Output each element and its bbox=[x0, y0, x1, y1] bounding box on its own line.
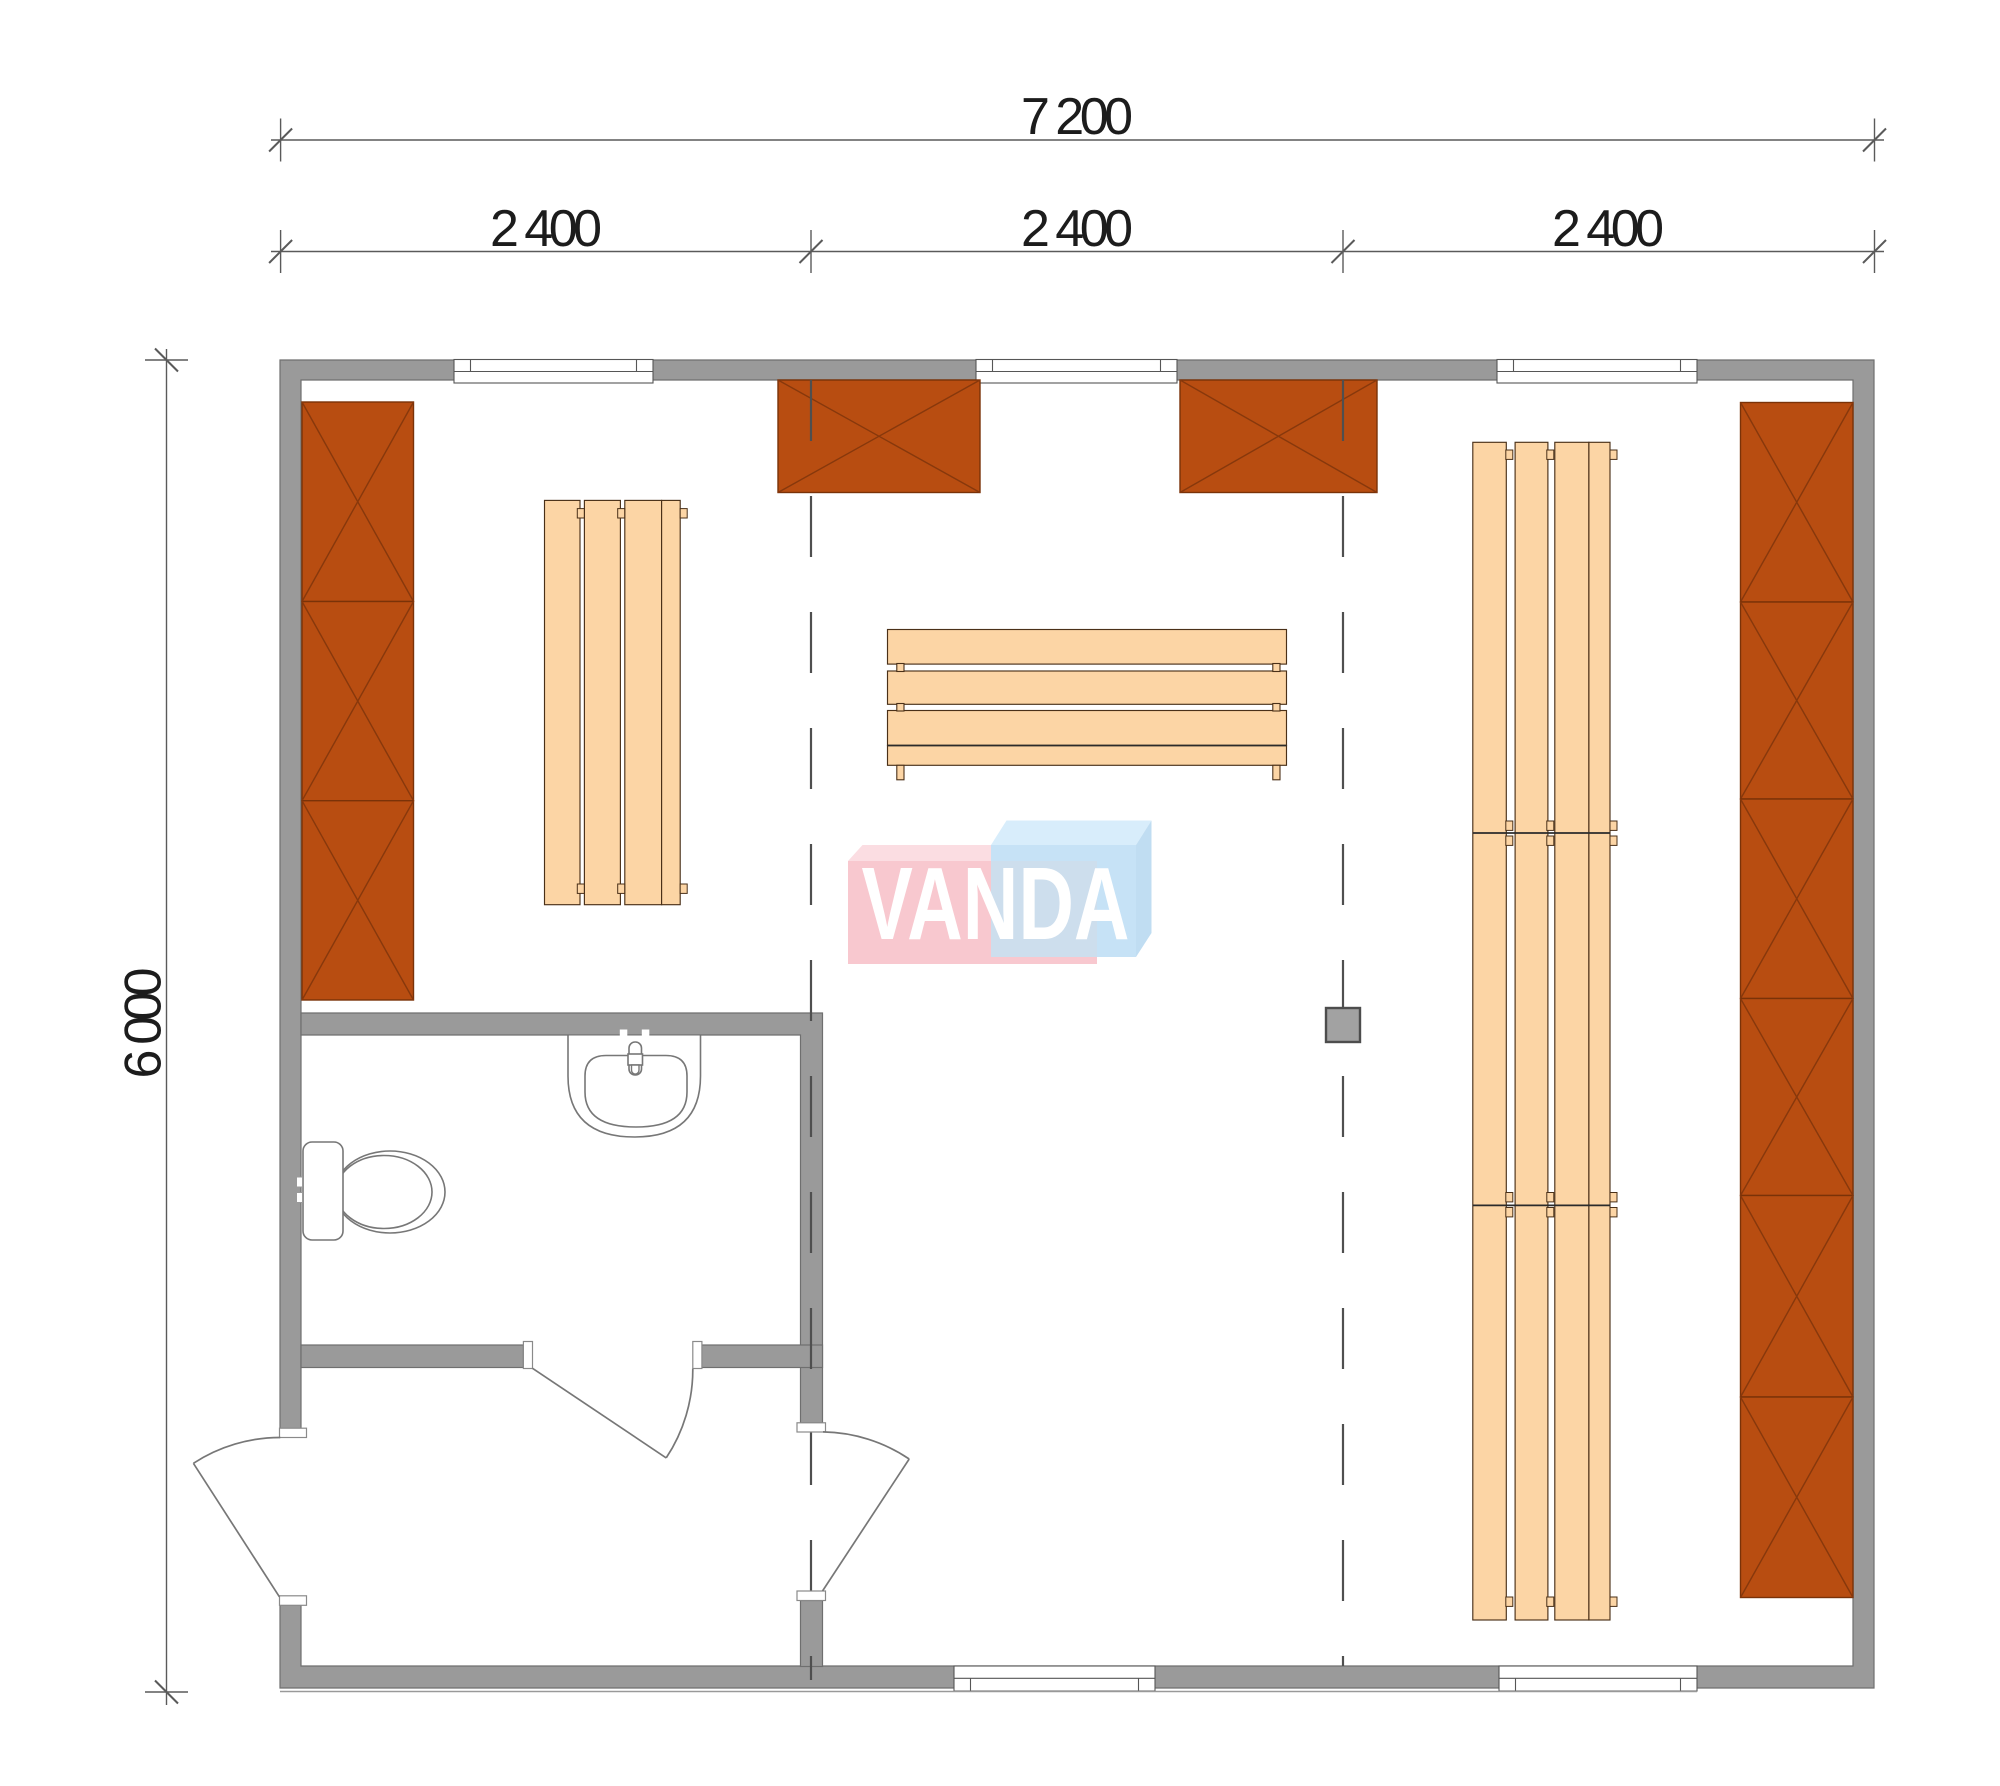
svg-text:2 400: 2 400 bbox=[1021, 200, 1133, 258]
svg-text:2 400: 2 400 bbox=[490, 200, 602, 258]
svg-text:2 400: 2 400 bbox=[1552, 200, 1664, 258]
svg-text:VANDA: VANDA bbox=[862, 846, 1130, 961]
svg-text:6 000: 6 000 bbox=[115, 968, 173, 1079]
svg-text:7 200: 7 200 bbox=[1021, 88, 1133, 146]
